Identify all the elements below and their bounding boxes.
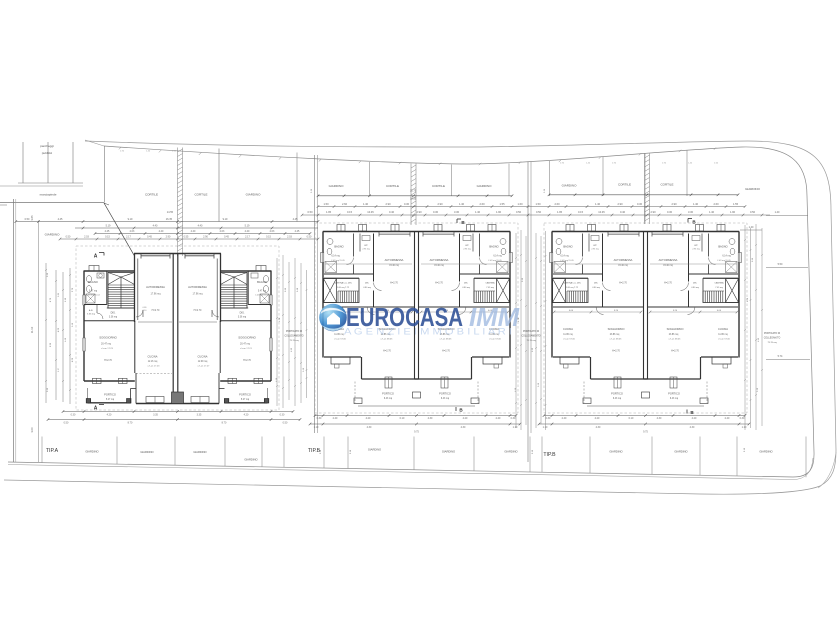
svg-text:4.80 mq: 4.80 mq <box>363 287 371 289</box>
svg-text:5.19: 5.19 <box>106 224 111 227</box>
svg-text:0.50: 0.50 <box>536 210 542 214</box>
svg-text:pubblici: pubblici <box>42 151 53 155</box>
svg-text:2.96 mq: 2.96 mq <box>591 249 598 251</box>
svg-text:4.20: 4.20 <box>107 413 112 416</box>
svg-text:H=2.70: H=2.70 <box>671 350 679 353</box>
svg-text:CORTILE: CORTILE <box>618 183 631 187</box>
svg-text:BAGNO: BAGNO <box>334 245 343 249</box>
svg-text:0.30: 0.30 <box>404 202 410 206</box>
svg-text:4.20: 4.20 <box>463 417 468 420</box>
svg-text:DIS.: DIS. <box>594 283 598 285</box>
svg-text:0.55: 0.55 <box>184 235 189 238</box>
svg-text:TIP.A: TIP.A <box>46 448 59 454</box>
svg-text:2.60: 2.60 <box>554 202 560 206</box>
svg-text:0.30: 0.30 <box>280 413 285 416</box>
svg-text:GIARDINO: GIARDINO <box>140 450 153 454</box>
svg-text:2.17: 2.17 <box>126 235 131 238</box>
svg-text:0.15: 0.15 <box>578 210 584 214</box>
svg-text:H=2.70: H=2.70 <box>194 309 202 312</box>
svg-text:14.55: 14.55 <box>167 211 174 214</box>
svg-text:6.14 mq: 6.14 mq <box>493 256 502 258</box>
svg-text:WP: WP <box>694 245 698 247</box>
svg-text:6.43 mq: 6.43 mq <box>441 398 450 400</box>
svg-text:2.40: 2.40 <box>725 417 730 420</box>
svg-text:SOGGIORNO: SOGGIORNO <box>667 327 684 331</box>
svg-text:6.43 mq: 6.43 mq <box>384 398 393 400</box>
svg-text:2.90: 2.90 <box>385 202 391 206</box>
svg-text:COLLEGAMENTO: COLLEGAMENTO <box>521 335 540 338</box>
svg-text:c/r-un 17.23: c/r-un 17.23 <box>101 347 113 350</box>
svg-text:L1/4 mq 15.05: L1/4 mq 15.05 <box>717 260 731 262</box>
svg-text:GIARDINO: GIARDINO <box>329 184 345 188</box>
svg-text:CORTILE: CORTILE <box>386 184 399 188</box>
svg-text:L1/4 mq 15.05: L1/4 mq 15.05 <box>488 260 502 262</box>
svg-text:CANTINA: CANTINA <box>485 282 495 285</box>
svg-text:17.96 mq: 17.96 mq <box>151 293 162 296</box>
svg-text:11.80 mq: 11.80 mq <box>334 334 344 336</box>
svg-text:1.10: 1.10 <box>314 426 319 429</box>
svg-text:0.30: 0.30 <box>511 417 516 420</box>
svg-text:4.30: 4.30 <box>461 426 466 429</box>
svg-text:15.40 mq: 15.40 mq <box>618 265 628 267</box>
svg-text:GIARDINO: GIARDINO <box>442 450 455 454</box>
svg-text:1.95: 1.95 <box>326 210 332 214</box>
svg-text:1.40: 1.40 <box>709 210 715 214</box>
svg-text:2.90: 2.90 <box>617 202 623 206</box>
svg-text:1.55: 1.55 <box>733 202 739 206</box>
svg-text:GIARDINO: GIARDINO <box>562 184 578 188</box>
svg-text:1.60: 1.60 <box>517 202 523 206</box>
svg-text:2.90: 2.90 <box>671 202 677 206</box>
svg-text:4.45: 4.45 <box>58 218 63 221</box>
svg-text:4.45: 4.45 <box>293 218 298 221</box>
svg-text:COLLEGAM.TO: COLLEGAM.TO <box>764 337 781 340</box>
svg-text:0.30: 0.30 <box>740 417 745 420</box>
svg-text:CORTILE: CORTILE <box>432 184 445 188</box>
svg-text:CORTILE: CORTILE <box>661 183 674 187</box>
svg-text:c/r-un 57.00: c/r-un 57.00 <box>489 338 501 341</box>
svg-text:AUTORIMESSA: AUTORIMESSA <box>659 258 678 262</box>
svg-text:2.03: 2.03 <box>220 230 225 233</box>
svg-text:CORTILE: CORTILE <box>195 193 208 197</box>
svg-text:0.45: 0.45 <box>224 235 229 238</box>
svg-text:2.60: 2.60 <box>479 202 485 206</box>
svg-text:1.50: 1.50 <box>323 202 329 206</box>
svg-text:DIS.: DIS. <box>693 283 697 285</box>
svg-text:1.60 mq 7.72: 1.60 mq 7.72 <box>337 287 350 289</box>
svg-text:4.45: 4.45 <box>295 230 300 233</box>
svg-text:3.35: 3.35 <box>153 413 158 416</box>
svg-text:2.40: 2.40 <box>562 417 567 420</box>
svg-text:2.03: 2.03 <box>287 235 292 238</box>
svg-text:H=2.70: H=2.70 <box>152 309 160 312</box>
svg-text:0.80: 0.80 <box>143 307 147 309</box>
svg-text:PORTICO: PORTICO <box>611 392 623 396</box>
svg-text:0.40: 0.40 <box>389 210 395 214</box>
svg-text:1.10: 1.10 <box>742 426 747 429</box>
svg-text:parcheggi: parcheggi <box>40 144 54 148</box>
svg-text:CANTINA t.oc. DIS.: CANTINA t.oc. DIS. <box>563 282 582 285</box>
svg-text:CUCINA: CUCINA <box>563 327 573 331</box>
svg-text:0.40: 0.40 <box>620 210 626 214</box>
svg-text:5.47 mq: 5.47 mq <box>258 291 267 293</box>
svg-text:7.05 mq: 7.05 mq <box>715 287 723 289</box>
svg-text:WP: WP <box>465 245 469 247</box>
svg-text:0.15: 0.15 <box>347 210 353 214</box>
svg-text:BAGNO: BAGNO <box>489 245 498 249</box>
svg-text:0.15: 0.15 <box>266 235 271 238</box>
svg-text:H=2.70: H=2.70 <box>664 282 672 285</box>
svg-text:4.80 mq: 4.80 mq <box>691 287 699 289</box>
svg-text:14.55: 14.55 <box>410 198 417 201</box>
svg-text:5.19: 5.19 <box>245 224 250 227</box>
svg-text:2.03: 2.03 <box>84 235 89 238</box>
svg-text:H=2.70: H=2.70 <box>612 350 620 353</box>
svg-text:3.35: 3.35 <box>197 413 202 416</box>
svg-text:c/r-un 58.05: c/r-un 58.05 <box>440 338 452 341</box>
svg-text:AUTORIMESSA: AUTORIMESSA <box>430 258 449 262</box>
svg-text:4.30: 4.30 <box>596 426 601 429</box>
svg-text:0.45: 0.45 <box>147 235 152 238</box>
svg-text:3.36 mq: 3.36 mq <box>109 317 118 319</box>
svg-text:GIARDINO: GIARDINO <box>246 193 262 197</box>
svg-text:c/r-un 58.05: c/r-un 58.05 <box>381 338 393 341</box>
svg-text:12.16 mq: 12.16 mq <box>148 361 158 363</box>
svg-text:2.90: 2.90 <box>650 210 656 214</box>
svg-text:4.30: 4.30 <box>657 417 662 420</box>
svg-text:8.70: 8.70 <box>222 421 227 424</box>
svg-text:CUCINA: CUCINA <box>148 355 158 359</box>
svg-text:2.90: 2.90 <box>203 235 208 238</box>
svg-text:TIP.B: TIP.B <box>308 448 321 454</box>
svg-text:1.40: 1.40 <box>363 202 369 206</box>
svg-text:marciapiede: marciapiede <box>40 193 57 197</box>
svg-text:4.40: 4.40 <box>191 230 196 233</box>
svg-text:BAGNO: BAGNO <box>718 245 727 249</box>
svg-text:20.47 mq: 20.47 mq <box>101 343 112 346</box>
svg-text:4.20: 4.20 <box>366 417 371 420</box>
svg-text:H=2.70: H=2.70 <box>435 282 443 285</box>
svg-text:4.20: 4.20 <box>595 417 600 420</box>
svg-text:8.70: 8.70 <box>128 421 133 424</box>
svg-text:CANTINA t.oc. DIS.: CANTINA t.oc. DIS. <box>334 282 353 285</box>
svg-text:15.40 mq: 15.40 mq <box>389 265 399 267</box>
svg-text:7.05 mq: 7.05 mq <box>486 287 494 289</box>
svg-text:3.30: 3.30 <box>688 210 694 214</box>
svg-text:0.50: 0.50 <box>307 210 313 214</box>
svg-text:AUTORIMESSA: AUTORIMESSA <box>385 258 404 262</box>
svg-text:0.30: 0.30 <box>433 210 439 214</box>
svg-text:20.47 mq: 20.47 mq <box>240 343 251 346</box>
svg-text:GIARDINO: GIARDINO <box>504 450 517 454</box>
svg-text:1.40: 1.40 <box>775 211 780 214</box>
svg-text:4.30: 4.30 <box>690 426 695 429</box>
svg-text:PORTICO: PORTICO <box>104 393 116 397</box>
svg-text:12.09 mq: 12.09 mq <box>198 361 208 363</box>
svg-text:c/r-un 57.00: c/r-un 57.00 <box>334 338 346 341</box>
svg-text:16.35: 16.35 <box>166 218 173 221</box>
svg-text:2.40: 2.40 <box>333 417 338 420</box>
svg-text:GIARDINO: GIARDINO <box>368 448 381 452</box>
svg-text:H=2.70: H=2.70 <box>390 282 398 285</box>
svg-text:11.80 mq: 11.80 mq <box>563 334 573 336</box>
svg-text:6.14 mq: 6.14 mq <box>560 256 569 258</box>
svg-text:BAGNO: BAGNO <box>257 280 267 284</box>
svg-text:BAGNO: BAGNO <box>563 245 572 249</box>
svg-text:15.40 mq: 15.40 mq <box>663 265 673 267</box>
svg-text:0.50: 0.50 <box>307 235 312 238</box>
svg-text:2.96 mq: 2.96 mq <box>362 249 369 251</box>
svg-text:4.45: 4.45 <box>105 230 110 233</box>
svg-text:9.19: 9.19 <box>223 218 228 221</box>
svg-text:L1/4 mq 15.14: L1/4 mq 15.14 <box>86 295 100 297</box>
svg-text:0.30: 0.30 <box>71 413 76 416</box>
svg-text:0.50: 0.50 <box>516 210 522 214</box>
svg-text:PORTICO: PORTICO <box>239 393 251 397</box>
svg-text:4.80 mq: 4.80 mq <box>592 287 600 289</box>
svg-text:15.75: 15.75 <box>410 190 417 193</box>
svg-text:5.74: 5.74 <box>778 355 783 358</box>
svg-text:c/r-un 57.00: c/r-un 57.00 <box>718 338 730 341</box>
svg-text:GIARDINO: GIARDINO <box>759 450 772 454</box>
svg-text:2.03: 2.03 <box>130 230 135 233</box>
svg-text:DIS.: DIS. <box>464 283 468 285</box>
svg-text:GIARDINO: GIARDINO <box>45 233 61 237</box>
svg-text:5.47 mq: 5.47 mq <box>89 291 98 293</box>
svg-text:4.80 mq: 4.80 mq <box>462 287 470 289</box>
svg-text:1.90: 1.90 <box>730 210 736 214</box>
svg-text:73.70 mq: 73.70 mq <box>526 340 536 342</box>
svg-text:6.43 mq: 6.43 mq <box>670 398 679 400</box>
svg-text:1.40: 1.40 <box>749 226 754 229</box>
svg-text:DIS.: DIS. <box>240 312 245 315</box>
svg-text:H=2.70: H=2.70 <box>243 359 251 362</box>
svg-text:5.50: 5.50 <box>778 263 783 266</box>
svg-text:PORTICATO DI: PORTICATO DI <box>764 332 780 335</box>
svg-text:2.03: 2.03 <box>270 230 275 233</box>
svg-text:COLLEGAMENTO: COLLEGAMENTO <box>284 335 303 338</box>
svg-text:PORTICO: PORTICO <box>439 392 451 396</box>
svg-text:0.30: 0.30 <box>317 417 322 420</box>
svg-text:A: A <box>94 406 98 412</box>
svg-text:2.96 mq: 2.96 mq <box>463 249 470 251</box>
svg-text:WP: WP <box>364 245 368 247</box>
svg-text:2.17: 2.17 <box>245 235 250 238</box>
svg-text:3.36 mq: 3.36 mq <box>87 314 96 316</box>
svg-text:H=2.70: H=2.70 <box>104 359 112 362</box>
svg-text:PORTICATO DI: PORTICATO DI <box>286 330 302 333</box>
svg-text:2.90: 2.90 <box>166 235 171 238</box>
svg-text:c/r-un 57.00: c/r-un 57.00 <box>563 338 575 341</box>
svg-text:3.00: 3.00 <box>30 427 34 433</box>
svg-text:A G E N Z I E I M M O B I L: A G E N Z I E I M M O B I L I A R I <box>344 327 512 338</box>
svg-text:SOGGIORNO: SOGGIORNO <box>238 336 256 340</box>
svg-text:2.40: 2.40 <box>496 417 501 420</box>
svg-text:PORTICO: PORTICO <box>668 392 680 396</box>
svg-text:15.40 mq: 15.40 mq <box>434 265 444 267</box>
svg-text:1.40: 1.40 <box>459 202 465 206</box>
svg-text:GIARDINO: GIARDINO <box>244 458 257 462</box>
svg-text:0.15: 0.15 <box>105 235 110 238</box>
svg-text:4.40: 4.40 <box>198 224 203 227</box>
svg-text:6.43 mq: 6.43 mq <box>613 398 622 400</box>
svg-text:23.86 mq: 23.86 mq <box>669 334 679 336</box>
svg-text:0.30: 0.30 <box>546 417 551 420</box>
svg-text:3.36 mq: 3.36 mq <box>238 317 247 319</box>
svg-text:6.14 mq: 6.14 mq <box>331 256 340 258</box>
svg-text:9.75: 9.75 <box>643 431 648 434</box>
svg-text:9.19: 9.19 <box>128 218 133 221</box>
svg-text:1.40: 1.40 <box>595 202 601 206</box>
svg-text:c/r-un 58.05: c/r-un 58.05 <box>669 338 681 341</box>
svg-text:2.90: 2.90 <box>437 202 443 206</box>
svg-text:0.50: 0.50 <box>64 421 69 424</box>
svg-text:0.50: 0.50 <box>25 218 30 221</box>
svg-text:3.30: 3.30 <box>454 210 460 214</box>
svg-text:WP: WP <box>593 245 597 247</box>
svg-text:2.10: 2.10 <box>143 310 147 312</box>
svg-text:GIARDINO: GIARDINO <box>609 450 622 454</box>
svg-text:BAGNO: BAGNO <box>88 280 98 284</box>
svg-text:1.50: 1.50 <box>535 202 541 206</box>
svg-text:4.40: 4.40 <box>245 230 250 233</box>
svg-text:1.55: 1.55 <box>499 202 505 206</box>
svg-text:0.30: 0.30 <box>637 202 643 206</box>
svg-text:A: A <box>94 254 98 260</box>
svg-text:DIS.: DIS. <box>111 312 116 315</box>
svg-text:1.40: 1.40 <box>693 202 699 206</box>
svg-text:CUCINA: CUCINA <box>198 355 208 359</box>
svg-text:73.70 mq: 73.70 mq <box>289 340 299 342</box>
svg-text:AUTORIMESSA: AUTORIMESSA <box>146 285 165 289</box>
svg-text:A.B.: A.B. <box>89 309 94 312</box>
svg-text:11.10: 11.10 <box>30 326 34 333</box>
svg-text:GIARDINO: GIARDINO <box>193 450 206 454</box>
svg-text:2.96 mq: 2.96 mq <box>692 249 699 251</box>
svg-text:73.70 mq: 73.70 mq <box>767 342 777 344</box>
svg-text:L1/4 mq 15.05: L1/4 mq 15.05 <box>560 260 574 262</box>
svg-text:c/r-un 58.05: c/r-un 58.05 <box>610 338 622 341</box>
svg-text:10.45: 10.45 <box>367 210 374 214</box>
svg-text:H=2.70: H=2.70 <box>442 350 450 353</box>
svg-text:1.40: 1.40 <box>475 210 481 214</box>
svg-text:c/r-un 17.23: c/r-un 17.23 <box>148 365 160 368</box>
svg-text:L1/4 mq 15.14: L1/4 mq 15.14 <box>255 295 269 297</box>
svg-text:0.50: 0.50 <box>750 210 756 214</box>
svg-text:AUTORIMESSA: AUTORIMESSA <box>614 258 633 262</box>
svg-text:0.10: 0.10 <box>400 417 405 420</box>
svg-text:1.10: 1.10 <box>513 426 518 429</box>
svg-text:c/r-un 17.21: c/r-un 17.21 <box>240 347 252 350</box>
svg-text:1.60 mq 7.72: 1.60 mq 7.72 <box>566 287 579 289</box>
svg-text:2.60: 2.60 <box>342 202 348 206</box>
svg-text:CANTINA: CANTINA <box>714 282 724 285</box>
svg-text:4.30: 4.30 <box>428 417 433 420</box>
svg-text:AUTORIMESSA: AUTORIMESSA <box>188 285 207 289</box>
svg-text:4.30: 4.30 <box>367 426 372 429</box>
svg-text:GIARDINO: GIARDINO <box>477 184 493 188</box>
svg-text:2.90: 2.90 <box>416 210 422 214</box>
svg-text:GIARDINO: GIARDINO <box>745 187 761 191</box>
svg-text:6.14 mq: 6.14 mq <box>722 256 731 258</box>
svg-text:c/r-un 17.27: c/r-un 17.27 <box>198 365 210 368</box>
svg-text:SOGGIORNO: SOGGIORNO <box>608 327 625 331</box>
svg-text:9.75: 9.75 <box>414 431 419 434</box>
svg-text:H=2.70: H=2.70 <box>383 350 391 353</box>
svg-text:10.45: 10.45 <box>598 210 605 214</box>
svg-text:PORTICO: PORTICO <box>382 392 394 396</box>
svg-text:CORTILE: CORTILE <box>145 193 158 197</box>
svg-text:11.80 mq: 11.80 mq <box>718 334 728 336</box>
svg-text:H=2.70: H=2.70 <box>619 282 627 285</box>
svg-text:23.86 mq: 23.86 mq <box>610 334 620 336</box>
svg-text:GIARDINO: GIARDINO <box>674 450 687 454</box>
svg-text:4.40: 4.40 <box>159 230 164 233</box>
svg-text:0.10: 0.10 <box>629 417 634 420</box>
svg-text:4.20: 4.20 <box>692 417 697 420</box>
svg-text:CUCINA: CUCINA <box>718 327 728 331</box>
svg-text:1.90: 1.90 <box>496 210 502 214</box>
svg-text:5.27 mq: 5.27 mq <box>106 399 115 401</box>
svg-text:4.20: 4.20 <box>244 413 249 416</box>
svg-text:0.50: 0.50 <box>283 421 288 424</box>
svg-text:17.96 mq: 17.96 mq <box>193 293 204 296</box>
svg-text:1.95: 1.95 <box>557 210 563 214</box>
svg-text:DIS.: DIS. <box>365 283 369 285</box>
svg-text:L1/4 mq 15.05: L1/4 mq 15.05 <box>331 260 345 262</box>
svg-text:0.50: 0.50 <box>66 235 71 238</box>
svg-text:0.30: 0.30 <box>667 210 673 214</box>
svg-text:5.27 mq: 5.27 mq <box>241 399 250 401</box>
svg-text:TIP.B: TIP.B <box>543 452 556 458</box>
svg-text:3.65: 3.65 <box>30 215 34 221</box>
svg-text:SOGGIORNO: SOGGIORNO <box>99 336 117 340</box>
svg-text:2.60: 2.60 <box>713 202 719 206</box>
svg-text:PORTICATO DI: PORTICATO DI <box>523 330 539 333</box>
svg-text:GIARDINO: GIARDINO <box>85 450 98 454</box>
svg-text:4.40: 4.40 <box>153 224 158 227</box>
